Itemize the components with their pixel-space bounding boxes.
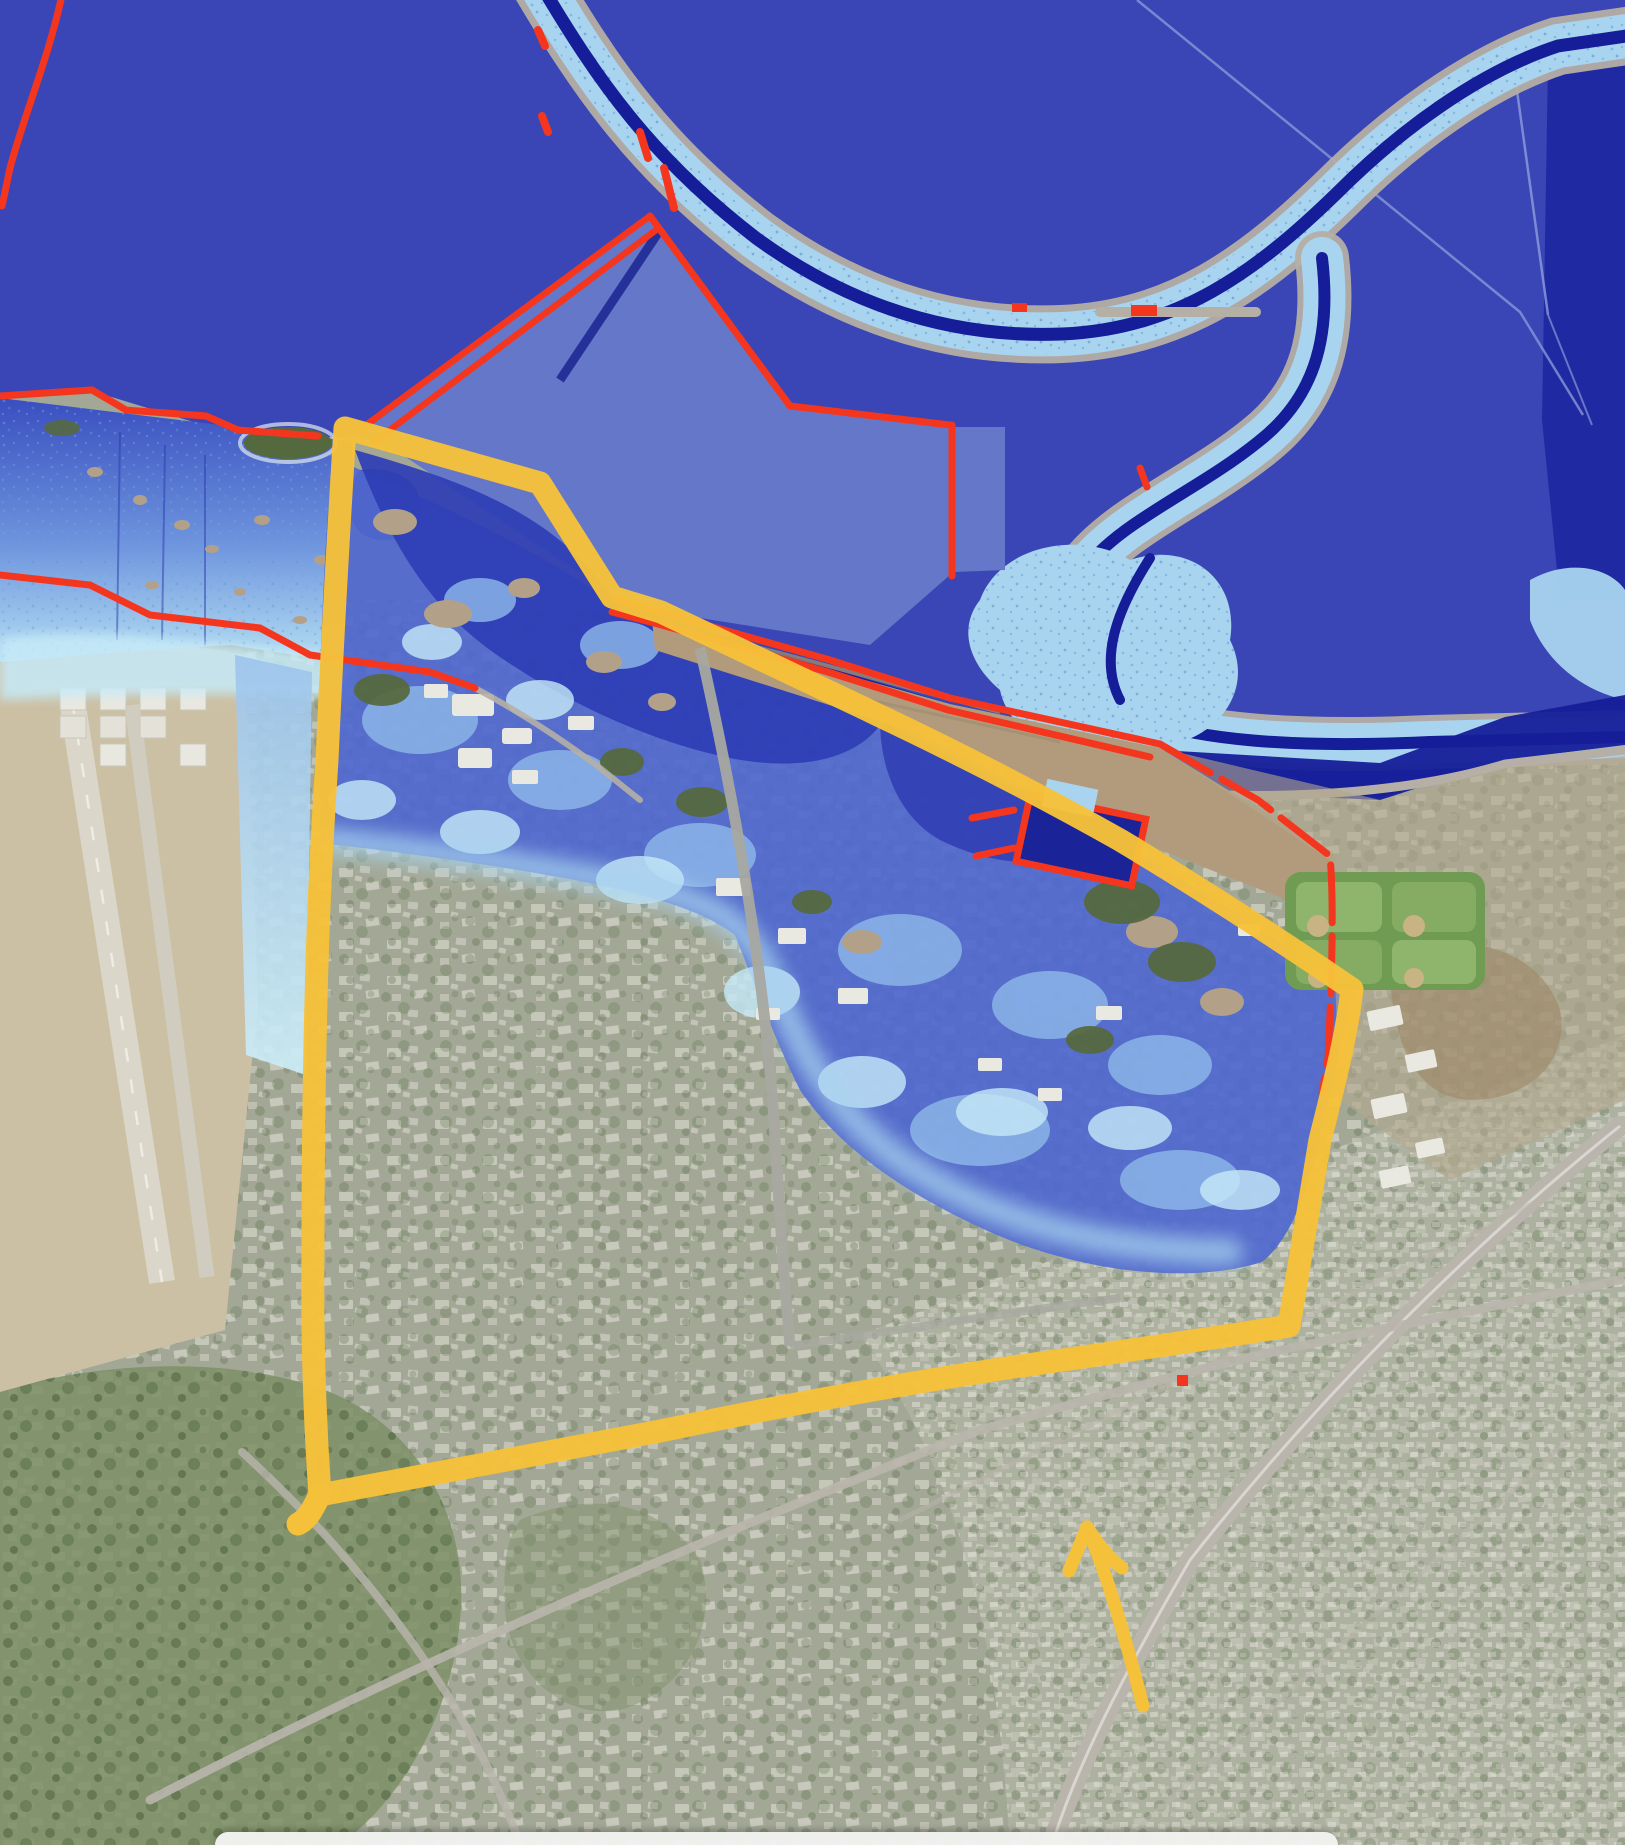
levee-break — [1012, 303, 1027, 312]
bottom-sheet-handle[interactable] — [215, 1832, 1338, 1845]
levee-break — [542, 116, 548, 132]
map-image — [0, 0, 1625, 1845]
red-marker — [1177, 1375, 1188, 1386]
tree-cover — [0, 1366, 461, 1845]
salt-pond — [955, 427, 1005, 572]
map-canvas[interactable] — [0, 0, 1625, 1845]
levee-break — [1131, 305, 1157, 316]
airfield — [0, 612, 258, 1392]
flooded-strip — [235, 655, 312, 1075]
marsh-island — [44, 420, 80, 436]
